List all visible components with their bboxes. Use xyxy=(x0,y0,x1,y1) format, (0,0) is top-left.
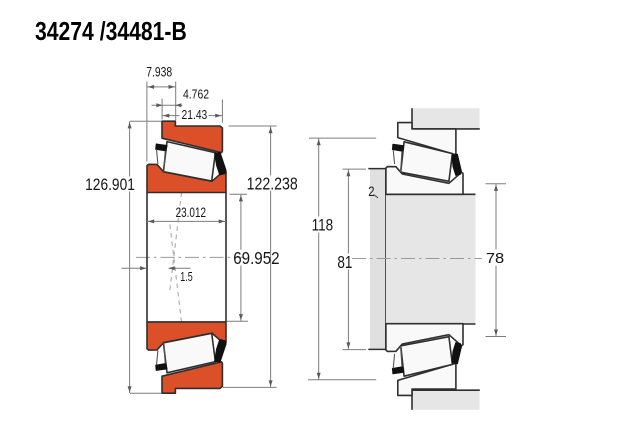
svg-text:34274 /34481-B: 34274 /34481-B xyxy=(35,17,187,45)
svg-text:81: 81 xyxy=(337,253,352,272)
svg-text:7.938: 7.938 xyxy=(146,64,172,80)
svg-text:23.012: 23.012 xyxy=(176,204,207,220)
svg-text:21.43: 21.43 xyxy=(182,107,208,123)
svg-text:118: 118 xyxy=(312,216,334,235)
svg-text:4.762: 4.762 xyxy=(183,86,209,102)
svg-text:1.5: 1.5 xyxy=(180,271,192,285)
svg-text:2: 2 xyxy=(368,184,374,199)
svg-text:122.238: 122.238 xyxy=(247,175,298,194)
svg-text:69.952: 69.952 xyxy=(233,249,279,268)
svg-text:78: 78 xyxy=(486,251,505,267)
svg-text:126.901: 126.901 xyxy=(85,176,135,195)
